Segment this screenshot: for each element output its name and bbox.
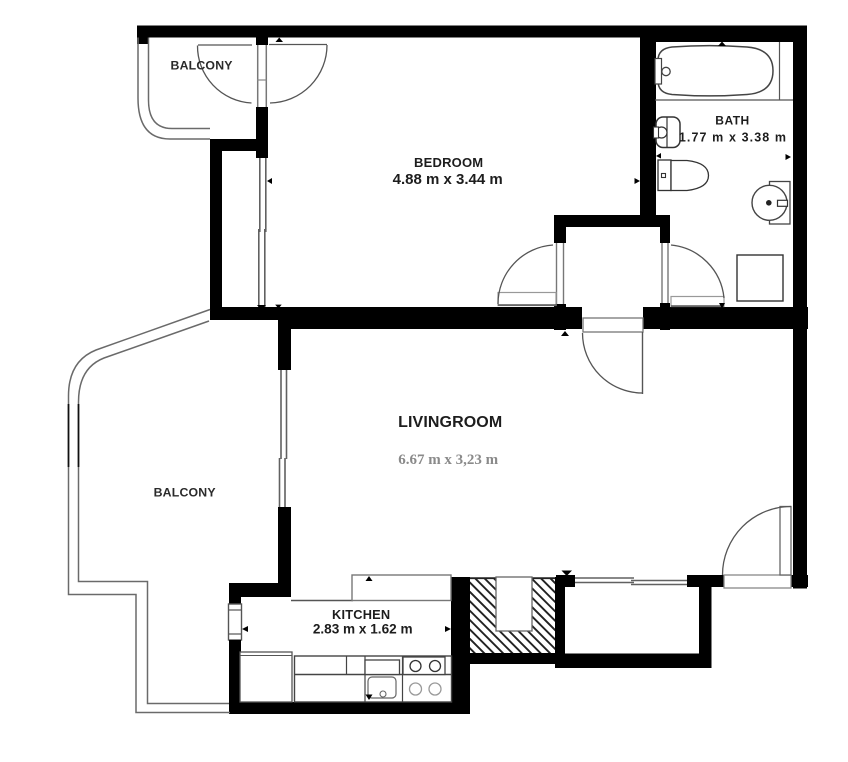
svg-text:2.83 m x 1.62 m: 2.83 m x 1.62 m (313, 622, 413, 637)
svg-text:BALCONY: BALCONY (170, 59, 232, 73)
svg-text:LIVINGROOM: LIVINGROOM (398, 414, 502, 431)
svg-text:BEDROOM: BEDROOM (414, 155, 483, 170)
svg-text:4.88 m x 3.44 m: 4.88 m x 3.44 m (393, 171, 503, 188)
svg-text:1.77 m x 3.38 m: 1.77 m x 3.38 m (679, 131, 787, 145)
svg-text:BALCONY: BALCONY (154, 486, 216, 500)
svg-text:6.67 m x 3,23 m: 6.67 m x 3,23 m (398, 452, 498, 468)
svg-text:KITCHEN: KITCHEN (332, 607, 390, 622)
svg-text:BATH: BATH (715, 114, 749, 128)
